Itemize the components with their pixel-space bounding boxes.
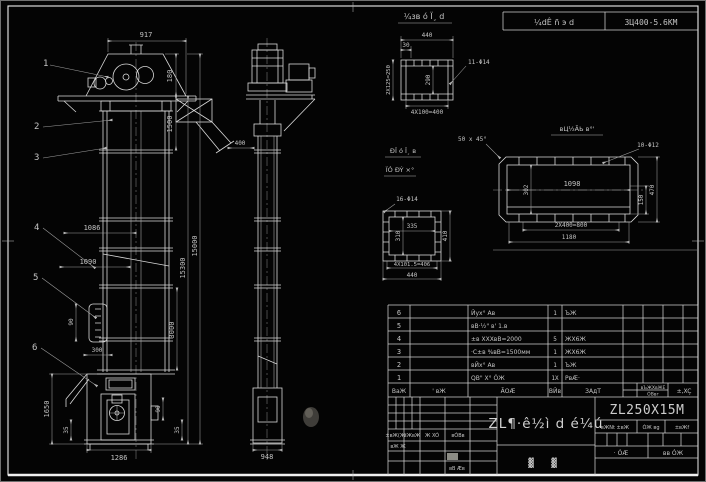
parts-table: 6 Йух° Ав 1 ЪЖ 5 вВ·½" в' 1.в 4 ±в XXXвВ… <box>388 305 698 475</box>
detail1-dim-left: 2X125=250 <box>386 65 392 95</box>
detail3-dim-310: 310 <box>395 230 402 241</box>
dim-180: 180 <box>166 70 174 83</box>
balloon-6: 6 <box>32 343 37 353</box>
front-view: 1 2 3 4 5 6 917 <box>32 31 234 462</box>
model-number: ZL250X15M <box>610 403 685 418</box>
drawing-subtitle-2: ▓ <box>551 457 557 469</box>
detail1-holes-label: 11-Φ14 <box>468 59 490 66</box>
balloon-3: 3 <box>34 153 39 163</box>
drawing-svg: ¼dÊ ñ э d 3Ц400-5.6КМ <box>0 0 706 482</box>
row-no: 1 <box>397 374 401 382</box>
row-name: ±в XXXвВ=2000 <box>471 336 522 343</box>
row-no: 5 <box>397 322 401 330</box>
dim-90-door: 90 <box>68 318 75 326</box>
row-name: вЙх° Ав <box>471 362 496 369</box>
balloon-5: 5 <box>33 273 38 283</box>
row-material: ЪЖ <box>565 362 577 369</box>
dim-15000: 15000 <box>191 235 199 256</box>
detail2-holes-label: 10-Φ12 <box>637 142 659 149</box>
tb-small-2: ÓЖ вg <box>642 424 659 431</box>
detail2-chamfer-note: 50 x 45° <box>458 136 487 143</box>
dim-948: 948 <box>261 453 274 461</box>
detail3-dim-335: 335 <box>407 223 418 230</box>
drawing-subtitle-1: ▓ <box>528 457 534 469</box>
cad-drawing-canvas: ¼dÊ ñ э d 3Ц400-5.6КМ <box>0 0 706 482</box>
detail3-dim-440: 440 <box>407 272 418 279</box>
sheet-header: ¼dÊ ñ э d 3Ц400-5.6КМ <box>503 12 698 30</box>
dim-35-left: 35 <box>63 426 70 434</box>
row-material: РвÆ· <box>565 375 580 382</box>
dim-90-right: 90 <box>155 405 162 413</box>
dim-1650: 1650 <box>43 401 51 418</box>
side-view: 400 948 <box>228 38 315 462</box>
rev-header-zone: Ж XÓ <box>425 432 439 439</box>
title-block: ±вЖ(Ж' вЖвЖ Ж XÓ вÓВв вЖ Ж вВ Æв ZL¶·ê½ì… <box>385 397 698 475</box>
col-header-name: ÃОÆ <box>501 388 516 395</box>
row-qty: 1 <box>553 310 557 317</box>
balloon-2: 2 <box>34 122 39 132</box>
rev-approve-label: вВ Æв <box>449 466 465 472</box>
col-header-extra2: ÓВвг <box>647 391 659 398</box>
dim-1086: 1086 <box>84 224 101 232</box>
dim-1090: 1090 <box>80 258 97 266</box>
smudge-artifact <box>303 407 319 427</box>
row-qty: 5 <box>553 336 557 343</box>
detail2-dim-470: 470 <box>649 184 656 195</box>
rev-header-count: вЖвЖ <box>404 433 421 439</box>
row-name: ·C±в %вВ=1500мм <box>471 349 530 356</box>
detail-flange-top: ¼зв ó Ï¸ d 440 30 2X125=250 290 4X100=40… <box>386 11 490 116</box>
detail2-dim-1180: 1180 <box>562 234 577 241</box>
row-name: QВ" X° ÓЖ <box>471 375 505 382</box>
row-no: 4 <box>397 335 401 343</box>
detail3-dim-410: 410 <box>442 230 449 241</box>
detail2-dim-302: 302 <box>523 184 530 195</box>
detail3-dim-bottom: 4X101.5=406 <box>394 262 430 268</box>
tb-sheet-1: · ÓÆ <box>614 450 629 457</box>
detail3-holes-label: 16-Φ14 <box>396 196 418 203</box>
col-header-qty: ВЙв <box>549 388 562 395</box>
dim-35-right: 35 <box>174 426 181 434</box>
balloon-4: 4 <box>34 223 39 233</box>
col-header-material: ЗАдТ <box>585 388 601 395</box>
dim-3000: 3000 <box>168 322 176 339</box>
row-no: 6 <box>397 309 401 317</box>
detail1-dim-30: 30 <box>402 42 410 49</box>
col-header-code: ' вЖ <box>432 388 446 395</box>
dim-15300: 15300 <box>179 257 187 278</box>
detail1-dim-bottom: 4X100=400 <box>411 109 444 116</box>
rev-design-label: вЖ Ж <box>390 444 406 450</box>
row-qty: 1X <box>551 375 559 382</box>
dim-1286: 1286 <box>111 454 128 462</box>
detail-casing-long: вЦ½ÃЬ в°' 50 x 45° 10-Φ12 1098 302 150 4… <box>458 124 697 250</box>
row-qty: 1 <box>553 349 557 356</box>
dim-400: 400 <box>235 140 246 147</box>
row-material: ЖX6Ж <box>565 336 586 343</box>
col-header-extra3: ±,XÇ <box>677 388 692 395</box>
tb-small-3: ±вЖf <box>675 425 690 431</box>
dim-300: 300 <box>92 347 103 354</box>
drawing-title: ZL¶·ê½ì d é¼ú <box>489 416 604 432</box>
row-name: вВ·½" в' 1.в <box>471 323 508 330</box>
row-qty: 1 <box>553 362 557 369</box>
col-header-no: ВаЖ <box>392 388 407 395</box>
header-field-1: ¼dÊ ñ э d <box>534 16 574 27</box>
detail-flange-square: ÐΪ ó Ï¸ в ÏÓ ÐÝ ×° 16-Φ14 335 310 410 4X… <box>383 146 452 281</box>
row-name: Йух° Ав <box>471 310 496 317</box>
detail3-title-2: ÏÓ ÐÝ ×° <box>386 165 415 174</box>
row-no: 3 <box>397 348 401 356</box>
detail1-dim-inner: 290 <box>425 74 432 85</box>
front-dim-lines <box>49 38 203 453</box>
signature-stamp <box>447 453 458 460</box>
col-header-extra1: вЪЖXвЖЕ <box>641 385 666 391</box>
detail3-title-1: ÐΪ ó Ï¸ в <box>390 146 416 155</box>
dim-1500: 1500 <box>166 116 174 133</box>
dim-917: 917 <box>140 31 153 39</box>
row-no: 2 <box>397 361 401 369</box>
row-material: ЖX6Ж <box>565 349 586 356</box>
detail1-dim-440: 440 <box>422 32 433 39</box>
header-field-2: 3Ц400-5.6КМ <box>625 18 678 27</box>
detail2-dim-150: 150 <box>638 194 645 205</box>
tb-small-1: вЖNt ±вЖ <box>601 425 630 431</box>
rev-header-doc: вÓВв <box>451 432 464 439</box>
detail2-title: вЦ½ÃЬ в°' <box>559 124 594 133</box>
detail2-dim-1098: 1098 <box>564 180 581 188</box>
detail1-title: ¼зв ó Ï¸ d <box>404 11 445 21</box>
row-material: ЪЖ <box>565 310 577 317</box>
detail2-dim-800: 2X400=800 <box>555 222 588 229</box>
tb-sheet-2: вв ÓЖ <box>663 450 684 457</box>
balloon-1: 1 <box>43 59 48 69</box>
